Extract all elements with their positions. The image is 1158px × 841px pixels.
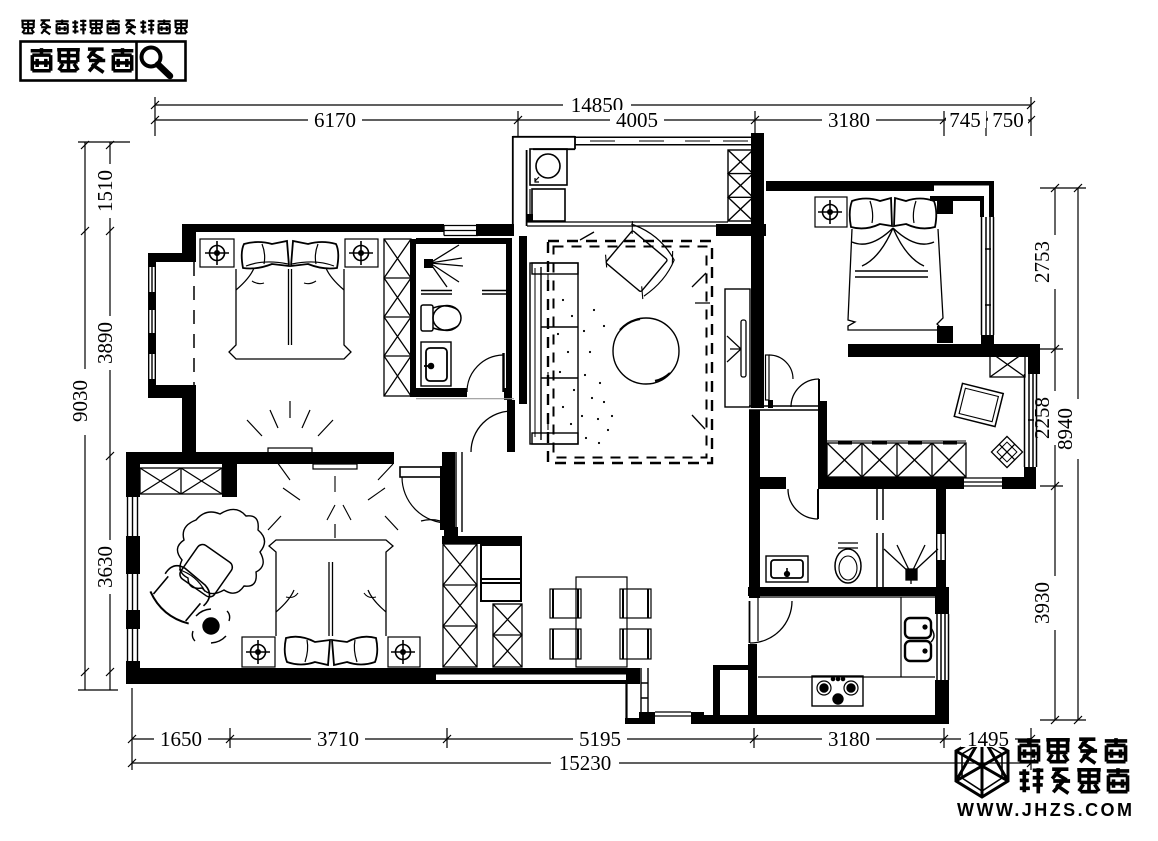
svg-text:3180: 3180 [828,108,870,132]
svg-text:6170: 6170 [314,108,356,132]
svg-text:3930: 3930 [1030,582,1054,624]
svg-text:3180: 3180 [828,727,870,751]
svg-text:1495: 1495 [967,727,1009,751]
svg-text:1510: 1510 [93,170,117,212]
svg-text:745: 745 [949,108,981,132]
svg-text:3710: 3710 [317,727,359,751]
svg-text:9030: 9030 [68,380,92,422]
svg-text:3890: 3890 [93,322,117,364]
svg-text:1650: 1650 [160,727,202,751]
svg-text:3630: 3630 [93,546,117,588]
svg-text:4005: 4005 [616,108,658,132]
svg-text:2753: 2753 [1030,241,1054,283]
svg-text:8940: 8940 [1053,408,1077,450]
svg-text:5195: 5195 [579,727,621,751]
svg-text:750: 750 [992,108,1024,132]
svg-text:15230: 15230 [559,751,612,775]
svg-text:WWW.JHZS.COM: WWW.JHZS.COM [957,800,1132,820]
